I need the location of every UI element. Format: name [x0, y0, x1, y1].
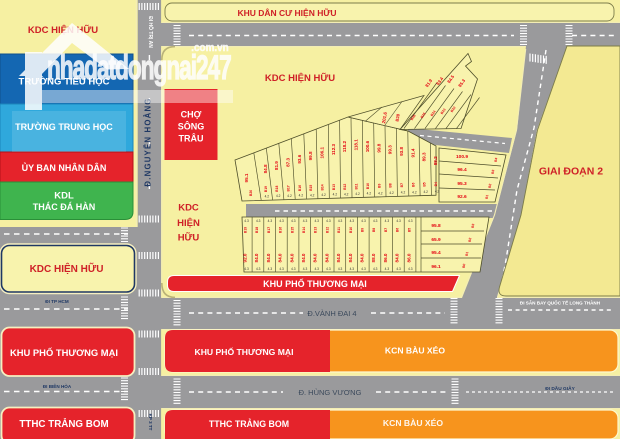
svg-text:4.2: 4.2	[389, 191, 394, 195]
svg-text:87.3: 87.3	[286, 157, 291, 166]
svg-text:84.8: 84.8	[263, 164, 268, 173]
svg-text:4.2: 4.2	[344, 192, 349, 196]
svg-text:B9: B9	[377, 184, 381, 188]
svg-text:4.3: 4.3	[396, 219, 401, 223]
svg-text:4.3: 4.3	[314, 219, 319, 223]
svg-text:4.3: 4.3	[361, 267, 366, 271]
svg-text:B5: B5	[423, 182, 427, 186]
svg-text:4.3: 4.3	[326, 267, 331, 271]
svg-text:B13: B13	[314, 227, 318, 233]
svg-text:B4: B4	[434, 182, 438, 186]
svg-text:B3: B3	[491, 169, 496, 174]
svg-text:4.3: 4.3	[408, 267, 413, 271]
svg-text:ỦY BAN NHÂN DÂN: ỦY BAN NHÂN DÂN	[22, 162, 107, 173]
svg-text:92.6: 92.6	[457, 194, 467, 200]
svg-text:4.3: 4.3	[279, 219, 284, 223]
svg-text:4.3: 4.3	[408, 219, 413, 223]
svg-text:KDC: KDC	[178, 203, 199, 214]
svg-text:4.2: 4.2	[321, 193, 326, 197]
svg-text:ĐI BIÊN HÒA: ĐI BIÊN HÒA	[43, 382, 72, 389]
svg-text:B16: B16	[298, 185, 302, 191]
svg-text:B1: B1	[465, 251, 470, 256]
svg-text:4.3: 4.3	[350, 267, 355, 271]
svg-text:KDC HIỆN HỮU: KDC HIỆN HỮU	[30, 262, 104, 275]
svg-text:4.2: 4.2	[287, 194, 292, 198]
svg-text:106.1: 106.1	[320, 147, 325, 159]
svg-text:84.0: 84.0	[313, 253, 318, 262]
svg-text:4.3: 4.3	[303, 267, 308, 271]
svg-text:B12: B12	[343, 184, 347, 190]
svg-text:4.3: 4.3	[256, 219, 261, 223]
svg-text:KHU PHỐ THƯƠNG MẠI: KHU PHỐ THƯƠNG MẠI	[263, 278, 367, 289]
svg-text:Đ. HÙNG VƯƠNG: Đ. HÙNG VƯƠNG	[299, 388, 362, 397]
svg-text:118.1: 118.1	[354, 139, 359, 151]
svg-text:TRÂU: TRÂU	[179, 133, 204, 144]
svg-text:KCN BÀU XÉO: KCN BÀU XÉO	[385, 346, 445, 356]
svg-text:96.4: 96.4	[457, 167, 467, 173]
svg-text:84.0: 84.0	[395, 253, 400, 262]
svg-text:KHU DÂN CƯ HIỆN HỮU: KHU DÂN CƯ HIỆN HỮU	[237, 7, 336, 18]
svg-text:B8: B8	[372, 228, 376, 232]
svg-text:92.0: 92.0	[243, 253, 248, 262]
svg-text:B5: B5	[407, 228, 411, 232]
svg-text:KHU PHỐ THƯƠNG MẠI: KHU PHỐ THƯƠNG MẠI	[195, 346, 294, 357]
svg-text:SÔNG: SÔNG	[178, 121, 205, 132]
svg-text:Đ.NGUYỄN HOÀNG: Đ.NGUYỄN HOÀNG	[144, 97, 153, 186]
svg-text:4.2: 4.2	[367, 192, 372, 196]
svg-text:B15: B15	[309, 185, 313, 191]
svg-text:B7: B7	[400, 183, 404, 187]
svg-text:4.3: 4.3	[268, 267, 273, 271]
svg-text:4.2: 4.2	[276, 194, 281, 198]
svg-text:KDL: KDL	[54, 191, 74, 202]
svg-text:GIAI ĐOẠN 2: GIAI ĐOẠN 2	[539, 166, 603, 178]
svg-text:84.0: 84.0	[336, 253, 341, 262]
svg-text:95.8: 95.8	[431, 223, 441, 229]
svg-text:4.2: 4.2	[265, 195, 270, 199]
svg-text:4.2: 4.2	[423, 190, 428, 194]
svg-text:B18: B18	[255, 227, 259, 233]
svg-text:B13: B13	[332, 184, 336, 190]
svg-text:B2: B2	[468, 237, 473, 242]
svg-text:118.2: 118.2	[342, 141, 347, 153]
svg-text:KCN BÀU XÉO: KCN BÀU XÉO	[383, 418, 443, 428]
svg-text:4.3: 4.3	[244, 267, 249, 271]
svg-text:4.3: 4.3	[373, 219, 378, 223]
svg-text:4.3: 4.3	[338, 219, 343, 223]
svg-text:93.8: 93.8	[399, 146, 404, 155]
svg-text:B14: B14	[321, 184, 325, 190]
svg-text:B7: B7	[384, 228, 388, 232]
svg-text:4.3: 4.3	[373, 267, 378, 271]
svg-text:TTHC TRẢNG BOM: TTHC TRẢNG BOM	[19, 418, 108, 430]
svg-text:93.6: 93.6	[297, 154, 302, 163]
svg-text:84.0: 84.0	[266, 253, 271, 262]
svg-text:B19: B19	[244, 227, 248, 233]
svg-text:96.1: 96.1	[431, 264, 441, 270]
svg-text:99.8: 99.8	[376, 143, 381, 152]
svg-text:TTHC TRẢNG BOM: TTHC TRẢNG BOM	[209, 418, 289, 429]
svg-text:nhadatdongnai247: nhadatdongnai247	[47, 50, 231, 88]
svg-text:4.3: 4.3	[385, 219, 390, 223]
svg-text:95.3: 95.3	[457, 181, 467, 187]
svg-text:84.0: 84.0	[301, 253, 306, 262]
svg-text:4.2: 4.2	[333, 193, 338, 197]
svg-text:84.0: 84.0	[289, 253, 294, 262]
svg-text:4.2: 4.2	[310, 193, 315, 197]
svg-text:B17: B17	[267, 227, 271, 233]
svg-text:B10: B10	[366, 183, 370, 189]
svg-text:84.0: 84.0	[360, 253, 365, 262]
svg-text:4.2: 4.2	[378, 191, 383, 195]
svg-text:89.3: 89.3	[422, 152, 427, 161]
svg-text:4.2: 4.2	[299, 194, 304, 198]
svg-text:HIỆN: HIỆN	[177, 217, 200, 229]
svg-text:B12: B12	[325, 227, 329, 233]
svg-text:95.1: 95.1	[244, 173, 249, 182]
svg-text:Đ.VÀNH ĐAI 4: Đ.VÀNH ĐAI 4	[307, 309, 356, 318]
svg-text:4.3: 4.3	[361, 219, 366, 223]
svg-text:4.2: 4.2	[401, 191, 406, 195]
svg-text:84.0: 84.0	[254, 253, 259, 262]
svg-text:HỮU: HỮU	[178, 233, 200, 244]
svg-text:4.3: 4.3	[338, 267, 343, 271]
svg-text:KHU PHỐ THƯƠNG MẠI: KHU PHỐ THƯƠNG MẠI	[10, 347, 118, 358]
svg-text:100.6: 100.6	[365, 140, 370, 152]
svg-text:B6: B6	[396, 228, 400, 232]
svg-text:B6: B6	[411, 183, 415, 187]
svg-text:ĐI HỒ TRỊ AN: ĐI HỒ TRỊ AN	[147, 16, 154, 48]
svg-text:4.3: 4.3	[291, 267, 296, 271]
svg-text:88.0: 88.0	[371, 253, 376, 262]
svg-text:4.3: 4.3	[256, 267, 261, 271]
svg-text:B10: B10	[349, 227, 353, 233]
svg-text:B9: B9	[361, 228, 365, 232]
svg-text:84.0: 84.0	[278, 253, 283, 262]
svg-text:4.2: 4.2	[412, 190, 417, 194]
svg-text:4.3: 4.3	[268, 219, 273, 223]
svg-text:4.3: 4.3	[279, 267, 284, 271]
svg-text:4.3: 4.3	[396, 267, 401, 271]
svg-text:99.8: 99.8	[308, 151, 313, 160]
svg-text:B4: B4	[494, 157, 499, 162]
svg-text:112.3: 112.3	[331, 143, 336, 155]
svg-text:86.0: 86.0	[406, 253, 411, 262]
svg-text:B1: B1	[485, 194, 490, 199]
svg-text:91.4: 91.4	[410, 148, 415, 157]
svg-text:B19: B19	[264, 186, 268, 192]
svg-text:THÁC ĐÁ HÀN: THÁC ĐÁ HÀN	[33, 202, 96, 212]
svg-text:88.2: 88.2	[433, 156, 438, 165]
svg-text:B18: B18	[275, 185, 279, 191]
svg-text:4.3: 4.3	[385, 267, 390, 271]
svg-text:4.3: 4.3	[326, 219, 331, 223]
svg-text:B15: B15	[290, 227, 294, 233]
svg-text:4.3: 4.3	[350, 219, 355, 223]
svg-text:84.0: 84.0	[348, 253, 353, 262]
svg-text:65.9: 65.9	[431, 237, 441, 243]
svg-text:81.9: 81.9	[274, 161, 279, 170]
svg-text:ĐI TP HCM: ĐI TP HCM	[45, 299, 69, 304]
svg-text:95.4: 95.4	[431, 250, 441, 256]
svg-text:KDC HIỆN HỮU: KDC HIỆN HỮU	[265, 72, 335, 84]
svg-text:84.0: 84.0	[324, 253, 329, 262]
svg-text:99.3: 99.3	[388, 145, 393, 154]
svg-text:4.3: 4.3	[314, 267, 319, 271]
svg-text:B11: B11	[337, 227, 341, 233]
svg-text:4.3: 4.3	[303, 219, 308, 223]
svg-text:B16: B16	[279, 227, 283, 233]
svg-text:86.0: 86.0	[383, 253, 388, 262]
svg-text:B8: B8	[389, 183, 393, 187]
svg-text:B17: B17	[287, 185, 291, 191]
svg-text:ĐI DẦU GIÂY: ĐI DẦU GIÂY	[545, 385, 575, 392]
svg-text:4.3: 4.3	[291, 219, 296, 223]
svg-text:100.9: 100.9	[456, 154, 468, 160]
svg-text:B3: B3	[471, 223, 476, 228]
svg-text:CHỢ: CHỢ	[181, 110, 202, 120]
svg-text:4.2: 4.2	[355, 192, 360, 196]
svg-text:B11: B11	[355, 183, 359, 189]
svg-text:B2: B2	[488, 183, 493, 188]
svg-text:B14: B14	[302, 227, 306, 233]
svg-text:KP 3 TT: KP 3 TT	[148, 414, 153, 431]
svg-text:B20: B20	[249, 190, 253, 196]
svg-text:B0: B0	[462, 263, 467, 268]
svg-text:ĐI SÂN BAY QUỐC TẾ LONG THÀNH: ĐI SÂN BAY QUỐC TẾ LONG THÀNH	[520, 300, 601, 306]
svg-text:4.3: 4.3	[244, 219, 249, 223]
